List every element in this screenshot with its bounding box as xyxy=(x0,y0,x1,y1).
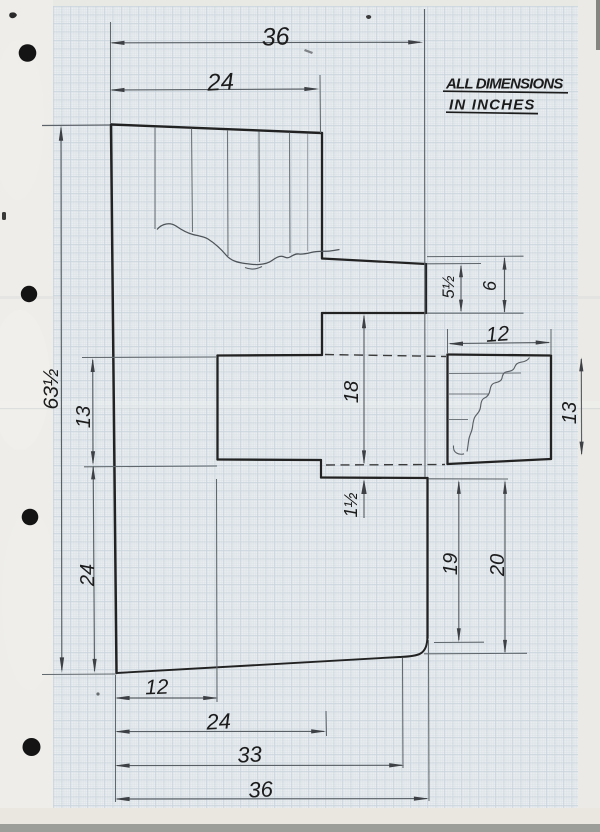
svg-text:36: 36 xyxy=(261,22,290,51)
svg-text:20: 20 xyxy=(487,554,509,577)
svg-text:6: 6 xyxy=(480,280,500,291)
svg-text:12: 12 xyxy=(145,676,169,700)
svg-text:19: 19 xyxy=(440,553,462,575)
svg-text:33: 33 xyxy=(237,741,264,767)
svg-text:24: 24 xyxy=(77,564,99,587)
svg-text:1½: 1½ xyxy=(341,492,361,517)
svg-text:12: 12 xyxy=(485,322,510,347)
svg-text:5½: 5½ xyxy=(440,275,458,298)
svg-text:13: 13 xyxy=(559,402,581,424)
svg-text:ALL DIMENSIONS: ALL DIMENSIONS xyxy=(445,76,566,93)
svg-text:13: 13 xyxy=(73,406,95,428)
svg-text:IN INCHES: IN INCHES xyxy=(449,97,537,114)
svg-text:18: 18 xyxy=(341,381,363,403)
svg-text:63½: 63½ xyxy=(40,369,63,410)
svg-text:36: 36 xyxy=(248,776,275,802)
svg-text:24: 24 xyxy=(205,708,232,734)
svg-text:24: 24 xyxy=(206,68,235,96)
